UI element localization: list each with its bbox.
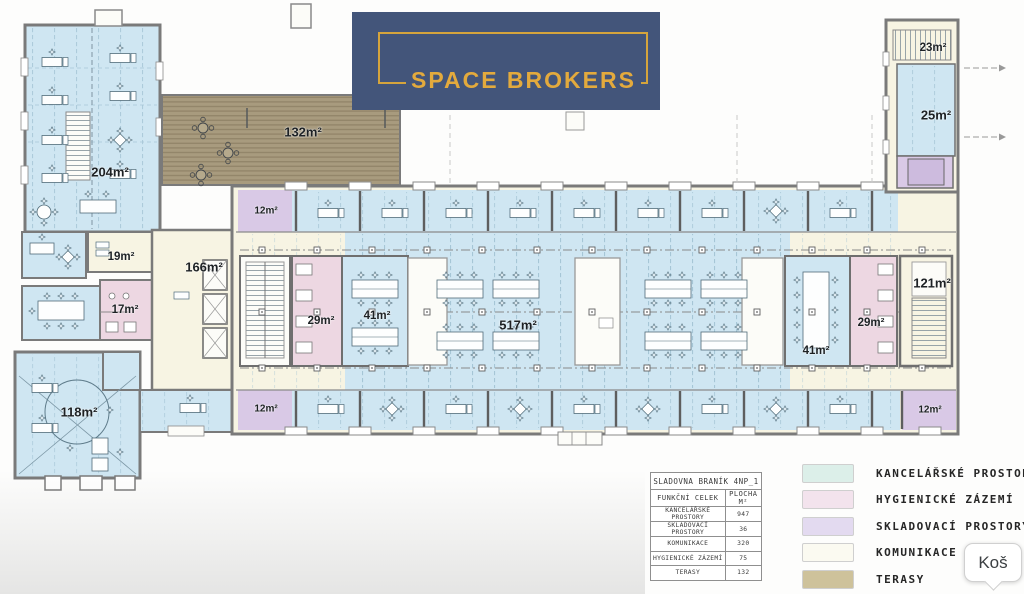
- trash-tooltip-label: Koš: [978, 553, 1007, 573]
- legend-label-offices: KANCELÁŘSKÉ PROSTORY: [876, 467, 1024, 480]
- table-cell: 947: [725, 507, 761, 522]
- room-label-hygiene-17: 17m²: [112, 304, 139, 316]
- table-title: SLADOVNA BRANÍK 4NP_1: [651, 473, 762, 490]
- legend-swatch-hygiene: [802, 490, 854, 509]
- legend-label-hygiene: HYGIENICKÉ ZÁZEMÍ: [876, 493, 1014, 506]
- table-row: HYGIENICKÉ ZÁZEMÍ 75: [651, 551, 762, 566]
- room-label-hygiene-29-left: 29m²: [308, 315, 335, 327]
- floor-plan-viewer: 204m² 132m² 19m² 166m² 17m² 118m² 12m² 1…: [0, 0, 1024, 594]
- table-cell: 132: [725, 566, 761, 581]
- table-cell: TERASY: [651, 566, 726, 581]
- table-cell: 75: [725, 551, 761, 566]
- legend-item-offices: KANCELÁŘSKÉ PROSTORY: [802, 464, 1024, 482]
- legend-label-terraces: TERASY: [876, 573, 925, 586]
- room-label-hygiene-29-right: 29m²: [858, 317, 885, 329]
- legend-swatch-circulation: [802, 543, 854, 562]
- table-row: SKLADOVACÍ PROSTORY 36: [651, 522, 762, 537]
- table-cell: SKLADOVACÍ PROSTORY: [651, 522, 726, 537]
- table-cell: HYGIENICKÉ ZÁZEMÍ: [651, 551, 726, 566]
- table-cell: KOMUNIKACE: [651, 537, 726, 552]
- legend-swatch-terraces: [802, 570, 854, 589]
- table-row: KOMUNIKACE 320: [651, 537, 762, 552]
- room-label-circulation-166: 166m²: [185, 260, 223, 275]
- table-row: KANCELÁŘSKÉ PROSTORY 947: [651, 507, 762, 522]
- table-cell: 320: [725, 537, 761, 552]
- table-row: TERASY 132: [651, 566, 762, 581]
- table-col-function: FUNKČNÍ CELEK: [651, 490, 726, 507]
- room-label-circulation-121: 121m²: [913, 276, 951, 291]
- room-label-office-41-left: 41m²: [364, 310, 391, 322]
- table-cell: 36: [725, 522, 761, 537]
- room-label-office-118: 118m²: [61, 405, 98, 420]
- wing-top-left: [21, 10, 163, 232]
- legend-swatch-offices: [802, 464, 854, 483]
- legend-swatch-storage: [802, 517, 854, 536]
- main-wing: [232, 182, 958, 445]
- room-label-circulation-19: 19m²: [108, 251, 135, 263]
- space-brokers-logo: SPACE BROKERS: [352, 12, 660, 110]
- room-label-circulation-23: 23m²: [920, 42, 947, 54]
- room-label-storage-12-bot-left: 12m²: [254, 404, 277, 415]
- area-summary-table: SLADOVNA BRANÍK 4NP_1 FUNKČNÍ CELEK PLOC…: [650, 472, 762, 581]
- room-label-office-25: 25m²: [921, 108, 951, 123]
- legend-item-hygiene: HYGIENICKÉ ZÁZEMÍ: [802, 491, 1024, 509]
- room-label-office-41-right: 41m²: [803, 345, 830, 357]
- table-col-area: PLOCHA M²: [725, 490, 761, 507]
- room-label-office-204: 204m²: [91, 165, 129, 180]
- room-label-storage-12-top-left: 12m²: [254, 206, 277, 217]
- legend-label-circulation: KOMUNIKACE: [876, 546, 957, 559]
- room-label-storage-12-bot-right: 12m²: [918, 405, 941, 416]
- logo-wordmark: SPACE BROKERS: [406, 67, 641, 93]
- legend-label-storage: SKLADOVACÍ PROSTORY: [876, 520, 1024, 533]
- table-cell: KANCELÁŘSKÉ PROSTORY: [651, 507, 726, 522]
- room-label-terrace-132: 132m²: [284, 125, 322, 140]
- trash-tooltip: Koš: [964, 543, 1022, 582]
- legend-item-storage: SKLADOVACÍ PROSTORY: [802, 517, 1024, 535]
- room-label-office-517: 517m²: [499, 318, 537, 333]
